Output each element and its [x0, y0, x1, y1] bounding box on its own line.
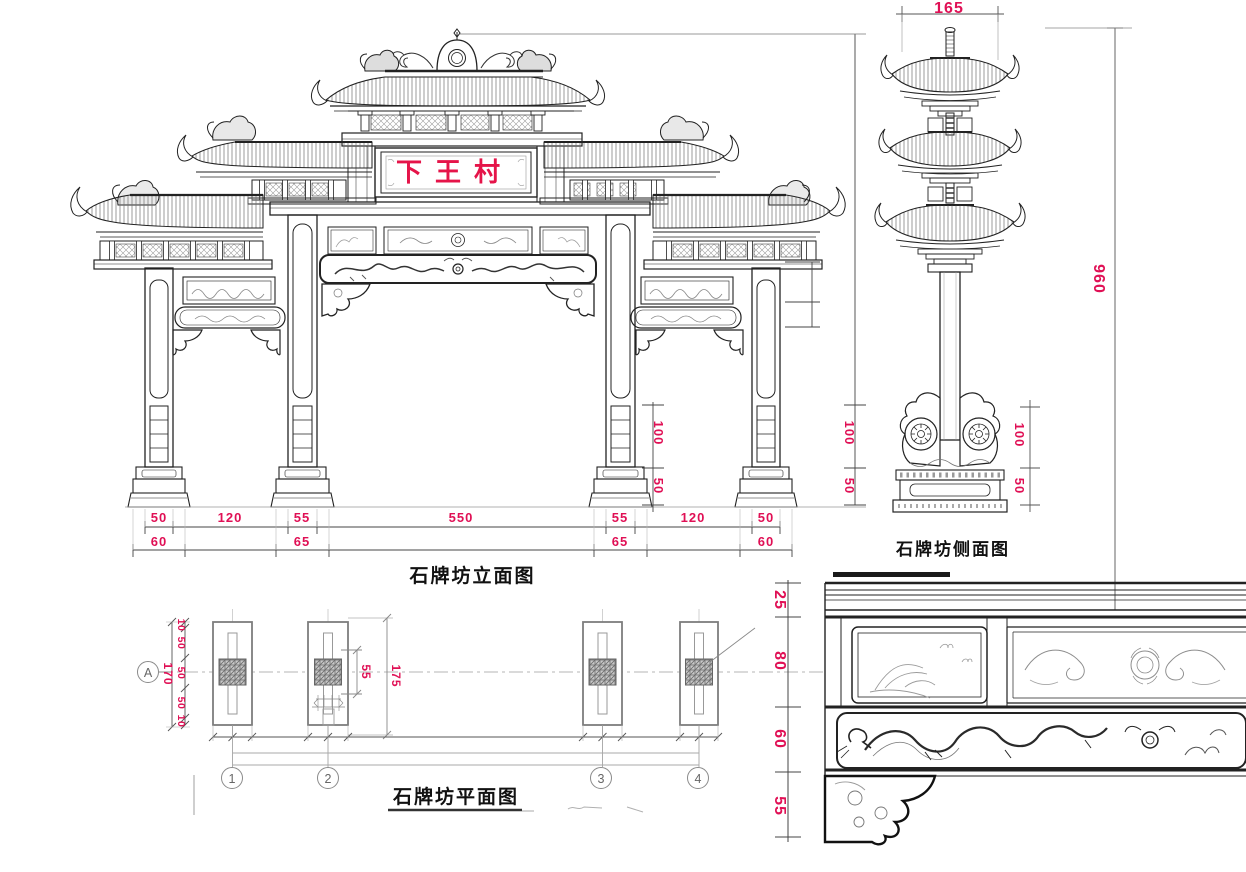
plan-view-title: 石牌坊平面图	[370, 782, 542, 809]
side-pagoda	[875, 28, 1025, 441]
ridge-lions	[360, 50, 555, 71]
architrave	[270, 202, 650, 254]
side-view-drawing	[870, 0, 1140, 620]
detail-drawing	[755, 570, 1246, 872]
dim-label: 10	[175, 703, 187, 739]
side-dim-lines	[896, 6, 1132, 610]
plan-bottom-chain	[209, 725, 722, 767]
dim-label: 55	[770, 784, 788, 828]
dim-label: 550	[439, 510, 483, 526]
dragon-beam	[320, 255, 596, 316]
dim-label: 170	[161, 656, 175, 692]
side-bay-panels-left	[173, 277, 285, 355]
axis-bubble-row: A	[137, 661, 159, 683]
dim-label: 120	[208, 510, 252, 526]
tier3-roof-left	[71, 180, 272, 269]
dim-label: 65	[598, 534, 642, 550]
dragon-beam-band	[825, 707, 1246, 776]
dim-label: 960	[1089, 253, 1107, 305]
dim-label: 55	[280, 510, 324, 526]
main-roof	[311, 71, 604, 146]
dim-label: 50	[1011, 464, 1027, 508]
crown-finial	[433, 29, 481, 71]
dim-label: 80	[770, 639, 788, 683]
dim-label: 65	[280, 534, 324, 550]
dim-label: 100	[1011, 413, 1027, 457]
plan-column-footings	[213, 622, 718, 725]
side-pedestal	[893, 470, 1007, 512]
dim-label: 50	[744, 510, 788, 526]
side-bay-panels-right	[631, 277, 743, 355]
side-view-title: 石牌坊侧面图	[878, 535, 1028, 560]
ridge-dragons	[392, 52, 522, 68]
carved-frieze-band	[841, 617, 1246, 707]
axis-bubble-2: 2	[317, 767, 339, 789]
drawing-sheet: 50 120 55 550 55 120 50 60 65 65 60 100 …	[0, 0, 1246, 872]
dim-label: 50	[841, 464, 857, 508]
dim-label: 100	[650, 411, 666, 455]
cornice-moldings	[825, 583, 1246, 617]
axis-bubble-1: 1	[221, 767, 243, 789]
elevation-title: 石牌坊立面图	[385, 561, 560, 588]
dim-label: 165	[921, 0, 977, 18]
drum-stones	[900, 393, 999, 467]
dim-label: 100	[841, 411, 857, 455]
dim-label: 50	[650, 464, 666, 508]
dim-label: 25	[770, 578, 788, 622]
corbel-bracket	[825, 776, 935, 844]
dim-label: 55	[598, 510, 642, 526]
dim-label: 55	[359, 654, 373, 690]
dim-label: 60	[744, 534, 788, 550]
dim-label: 120	[671, 510, 715, 526]
dim-label: 60	[770, 717, 788, 761]
dim-label: 175	[389, 658, 403, 694]
pedestals	[128, 467, 797, 507]
tier2-roof-right	[540, 116, 739, 204]
dim-label: 60	[137, 534, 181, 550]
elevation-drawing	[30, 28, 870, 568]
plaque-text: 下王村	[378, 151, 531, 194]
pencil-scribbles	[568, 807, 643, 812]
tier2-roof-left	[177, 116, 376, 204]
tier3-roof-right	[644, 180, 845, 269]
axis-bubble-3: 3	[590, 767, 612, 789]
axis-bubble-4: 4	[687, 767, 709, 789]
dim-label: 50	[137, 510, 181, 526]
